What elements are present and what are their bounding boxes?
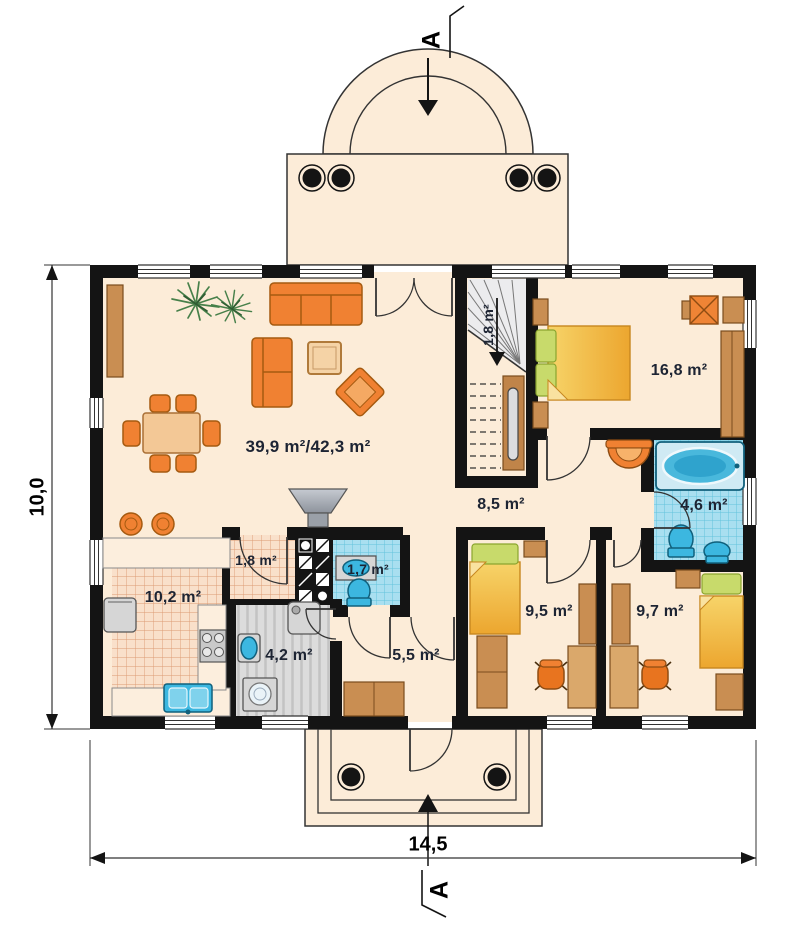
- washing-machine: [243, 678, 277, 711]
- bar-counter: [103, 538, 230, 568]
- wardrobe: [579, 584, 596, 644]
- window: [210, 265, 262, 278]
- room-label-utility: 4,2 m²: [265, 647, 312, 665]
- cabinet: [716, 674, 743, 710]
- room-label-pantry: 1,8 m²: [235, 552, 277, 568]
- desk: [568, 646, 596, 708]
- window: [138, 265, 190, 278]
- room-label-bedroom-right: 9,7 m²: [636, 603, 683, 621]
- room-label-corridor: 5,5 m²: [392, 647, 439, 665]
- section-marker-bottom: A: [426, 881, 455, 899]
- window: [90, 398, 103, 428]
- window: [572, 265, 620, 278]
- chair: [682, 301, 690, 319]
- wardrobe: [721, 331, 744, 437]
- window: [743, 478, 756, 525]
- porch-column: [484, 764, 510, 790]
- bar-stool: [152, 513, 174, 535]
- floor-plan: 39,9 m²/42,3 m² 10,2 m² 1,8 m² 1,7 m² 4,…: [0, 0, 800, 942]
- window: [743, 300, 756, 348]
- room-label-hall: 8,5 m²: [477, 496, 524, 514]
- dimension-left: [44, 265, 90, 729]
- dim-arrow-icon: [46, 265, 58, 280]
- room-label-bathroom: 4,6 m²: [680, 497, 727, 515]
- window: [262, 716, 308, 729]
- shelf: [723, 297, 744, 323]
- room-label-kitchen: 10,2 m²: [145, 589, 202, 607]
- porch-column: [328, 165, 354, 191]
- window: [668, 265, 713, 278]
- room-label-wc: 1,7 m²: [347, 561, 389, 577]
- boiler: [288, 602, 320, 634]
- coffee-table: [308, 342, 341, 374]
- room-label-bedroom-left: 9,5 m²: [525, 603, 572, 621]
- pillow: [536, 330, 556, 362]
- cabinet: [477, 636, 507, 708]
- nightstand: [533, 402, 548, 428]
- dining-table: [143, 413, 200, 453]
- bidet: [704, 542, 730, 563]
- single-bed: [700, 574, 743, 668]
- nightstand: [533, 299, 548, 325]
- dim-arrow-icon: [741, 852, 756, 864]
- loveseat: [252, 338, 292, 407]
- dimension-width-label: 14,5: [409, 834, 448, 857]
- stove: [200, 630, 226, 662]
- window: [90, 540, 103, 585]
- single-bed: [470, 544, 520, 634]
- wardrobe: [612, 584, 630, 644]
- double-bed: [536, 326, 630, 400]
- porch-floor: [287, 154, 568, 265]
- shelf: [524, 541, 546, 557]
- room-label-living: 39,9 m²/42,3 m²: [246, 437, 371, 457]
- window: [165, 716, 215, 729]
- chimney-block: [295, 535, 333, 605]
- pillow: [702, 574, 741, 594]
- desk: [610, 646, 638, 708]
- section-mark-top-line: [450, 6, 464, 58]
- floor-plan-drawing: [0, 0, 800, 942]
- desk-chair: [639, 660, 671, 690]
- sofa: [270, 283, 362, 325]
- room-label-stairs: 1,8 m²: [480, 304, 496, 346]
- desk-chair: [535, 660, 567, 690]
- stair-handrail: [508, 388, 518, 460]
- kitchen-sink: [164, 684, 212, 715]
- dimension-height-label: 10,0: [27, 478, 50, 517]
- window: [642, 716, 688, 729]
- fridge: [104, 598, 136, 632]
- top-porch: [287, 49, 568, 265]
- porch-column: [338, 764, 364, 790]
- porch-column: [299, 165, 325, 191]
- shelf-cabinet: [107, 285, 123, 377]
- wc-toilet: [347, 579, 371, 606]
- utility-sink: [238, 634, 260, 662]
- window: [300, 265, 362, 278]
- shelf: [676, 570, 700, 588]
- porch-column: [534, 165, 560, 191]
- bar-stool: [120, 513, 142, 535]
- pillow: [472, 544, 518, 564]
- porch-column: [506, 165, 532, 191]
- bathtub: [656, 442, 744, 490]
- window: [547, 716, 592, 729]
- corridor-wardrobe: [344, 682, 404, 716]
- window: [492, 265, 565, 278]
- dim-arrow-icon: [90, 852, 105, 864]
- dim-arrow-icon: [46, 714, 58, 729]
- section-marker-top: A: [418, 31, 447, 49]
- toilet: [668, 525, 694, 557]
- room-label-bedroom-main: 16,8 m²: [651, 362, 708, 380]
